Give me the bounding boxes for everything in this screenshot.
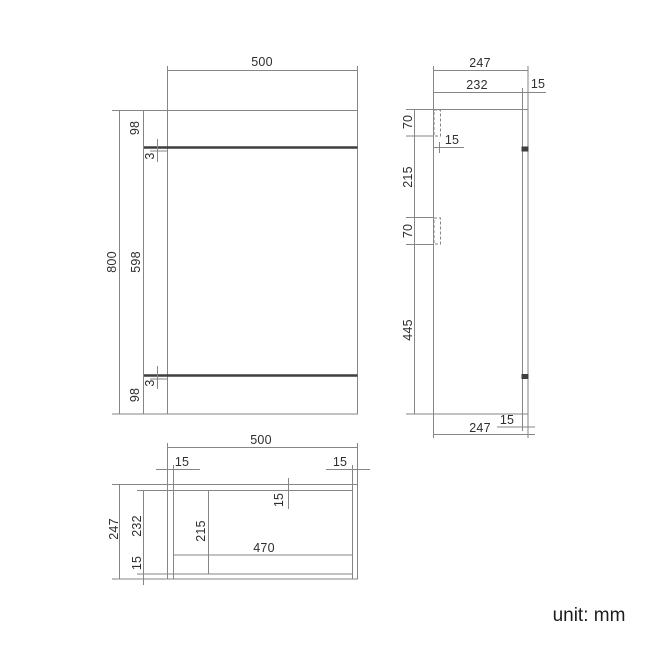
dim-front-door: 598: [130, 251, 143, 272]
dim-plan-depth-minus-back: 232: [131, 515, 144, 536]
side-view-outline: [434, 110, 529, 415]
dim-side-back-panel: 15: [531, 78, 545, 91]
dim-side-back-panel-bottom: 15: [500, 414, 514, 427]
dim-plan-overall-width: 500: [250, 434, 271, 447]
dim-plan-overall-depth: 247: [108, 518, 121, 539]
dim-side-bracket-depth: 15: [445, 134, 459, 147]
front-view: [112, 66, 358, 414]
dim-side-bottom-bracket: 70: [402, 224, 415, 238]
front-view-outline: [168, 111, 358, 415]
dim-side-top-bracket: 70: [402, 115, 415, 129]
dim-side-front-depth: 232: [466, 79, 487, 92]
dim-plan-front-rail: 15: [131, 556, 144, 570]
bracket-dashed-bottom: [434, 218, 441, 244]
dim-front-overall-height: 800: [106, 251, 119, 272]
bracket-dashed-top: [434, 110, 441, 136]
dim-plan-right-panel: 15: [333, 456, 347, 469]
dim-front-overall-width: 500: [251, 56, 272, 69]
dim-front-top-gap: 3: [144, 152, 157, 159]
dim-plan-left-panel: 15: [175, 456, 189, 469]
technical-drawing-page: 500 800 98 3 598 3 98 247 232 15 70 15 2…: [0, 0, 650, 650]
side-view: [406, 66, 546, 438]
dim-plan-internal-width: 470: [253, 542, 274, 555]
unit-label: unit: mm: [553, 605, 626, 627]
dim-front-plinth: 98: [129, 388, 142, 402]
dim-plan-internal-depth: 215: [195, 520, 208, 541]
dim-side-overall-depth-bottom: 247: [469, 422, 490, 435]
drawing-canvas: [0, 0, 650, 650]
plan-view: [112, 443, 370, 585]
dim-front-bottom-gap: 3: [144, 379, 157, 386]
shelf-notch-top: [522, 147, 529, 152]
dim-front-top-panel: 98: [129, 121, 142, 135]
dim-side-overall-depth: 247: [469, 57, 490, 70]
dim-side-below-brackets: 445: [402, 319, 415, 340]
dim-plan-back-panel: 15: [273, 493, 286, 507]
dim-side-between-brackets: 215: [402, 166, 415, 187]
shelf-notch-bottom: [522, 374, 529, 379]
